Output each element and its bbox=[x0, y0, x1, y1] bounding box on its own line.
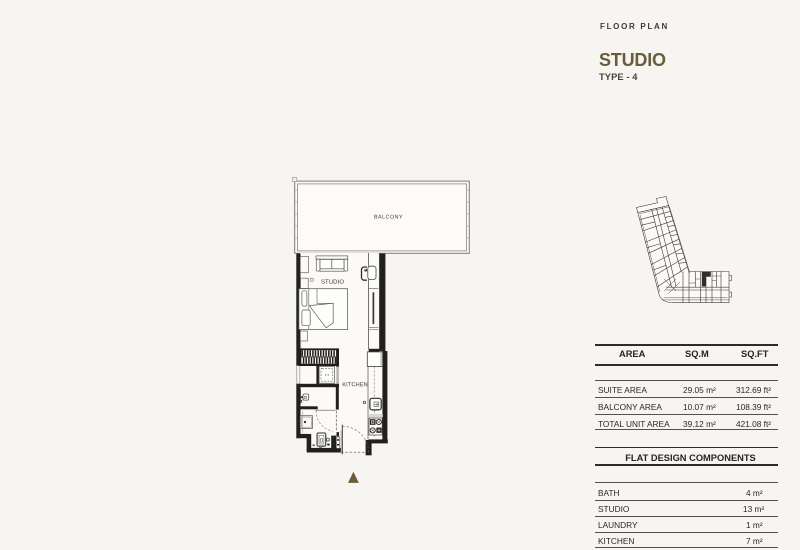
svg-text:BALCONY: BALCONY bbox=[374, 214, 403, 220]
svg-text:KITCHEN: KITCHEN bbox=[342, 382, 367, 388]
svg-text:STUDIO: STUDIO bbox=[321, 280, 345, 286]
